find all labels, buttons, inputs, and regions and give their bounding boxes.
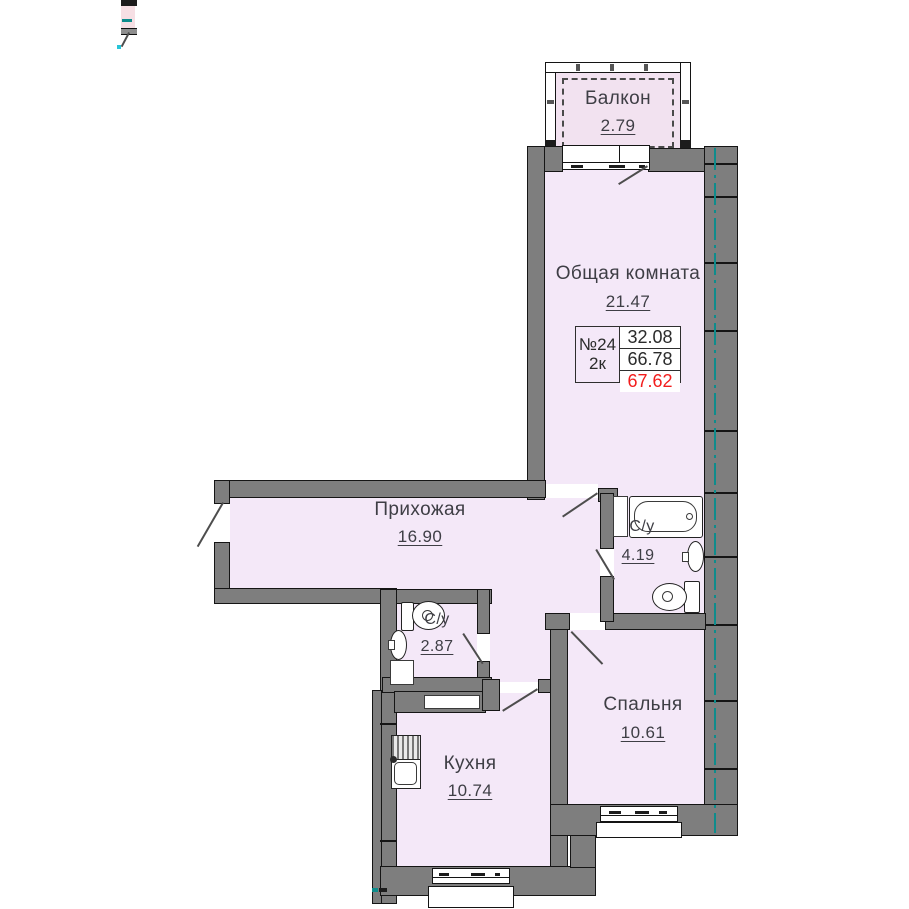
sink-icon-bath-main [687,541,704,572]
fragment-axis [122,19,132,22]
window-mark [571,165,583,168]
window-mark [659,811,667,814]
wall-joint [704,430,738,432]
wall [214,480,546,498]
room-area-balcony: 2.79 [551,116,685,136]
wall [527,146,545,500]
window-bedroom [600,806,678,822]
fragment-fill [121,6,135,28]
wall-joint [704,262,738,264]
wall-joint [704,163,738,165]
room-label-bath-main: С/у [616,518,668,536]
rail-tick [644,64,648,71]
room-area-bedroom: 10.61 [573,723,713,743]
window-sill-bedroom [596,822,682,838]
wall [570,832,596,868]
window-mullion [619,146,620,162]
sink-faucet [388,640,395,650]
room-label-hall: Прихожая [350,499,490,521]
window-mark [439,873,449,876]
unit-area-row: 66.78 [620,349,680,371]
wall [214,588,397,604]
window-kitchen [432,868,510,884]
window-mark [471,873,485,876]
window-line [563,162,649,163]
room-area-hall: 16.90 [350,527,490,547]
window-mark [609,165,625,168]
wall-mark [379,888,387,892]
unit-area-row: 32.08 [620,327,680,349]
window-living [562,145,650,170]
wall [545,613,570,630]
wall-joint [704,330,738,332]
window-sill-kitchen [428,886,514,908]
wall-joint [704,196,738,198]
wall [605,613,706,630]
rail-tick [610,64,614,71]
wall-joint [704,624,738,626]
room-label-kitchen: Кухня [400,753,540,775]
wall [600,576,614,622]
wall [600,493,614,549]
room-label-bedroom: Спальня [573,694,713,716]
wall-mark [372,888,378,892]
axis-line-right [714,148,716,833]
wall-joint [704,492,738,494]
wall [482,679,500,711]
wall-joint [380,723,397,725]
wall [214,480,230,504]
unit-area-row-total: 67.62 [620,371,680,392]
rail-tick [576,64,580,71]
room-area-bath-main: 4.19 [612,547,664,565]
window-line [601,815,677,816]
wall [382,589,492,604]
sink-faucet [682,552,689,562]
window-line [433,877,509,878]
room-bedroom [566,628,706,808]
wall-joint [704,768,738,770]
room-area-kitchen: 10.74 [400,781,540,801]
room-area-bath-small: 2.87 [411,638,463,656]
wall [648,148,706,172]
toilet-inner [662,591,673,602]
duct-shaft-opening [424,695,480,709]
washer-icon [390,660,414,685]
fragment-dot [117,45,121,49]
bathtub-drain [686,513,693,520]
wall [477,589,490,634]
toilet-icon-bath-main [652,583,687,611]
room-area-living: 21.47 [548,292,708,312]
room-label-balcony: Балкон [551,88,685,110]
window-mark [609,811,621,814]
wall-joint [380,840,397,842]
room-hall-corridor [488,590,554,690]
unit-info-table: №24 2к 32.08 66.78 67.62 [575,326,681,383]
unit-areas-column: 32.08 66.78 67.62 [620,327,680,382]
unit-number: №24 [579,336,616,355]
window-mark [635,811,649,814]
kitchen-faucet [390,756,397,763]
unit-type: 2к [589,355,606,374]
wall-joint [704,556,738,558]
window-mark [495,873,500,876]
unit-number-cell: №24 2к [576,327,620,382]
floor-plan: Балкон 2.79 Общая комната 21.47 Прихожая… [0,0,909,909]
room-label-bath-small: С/у [411,611,463,629]
balcony-rail-top [545,62,691,73]
room-label-living: Общая комната [548,263,708,285]
